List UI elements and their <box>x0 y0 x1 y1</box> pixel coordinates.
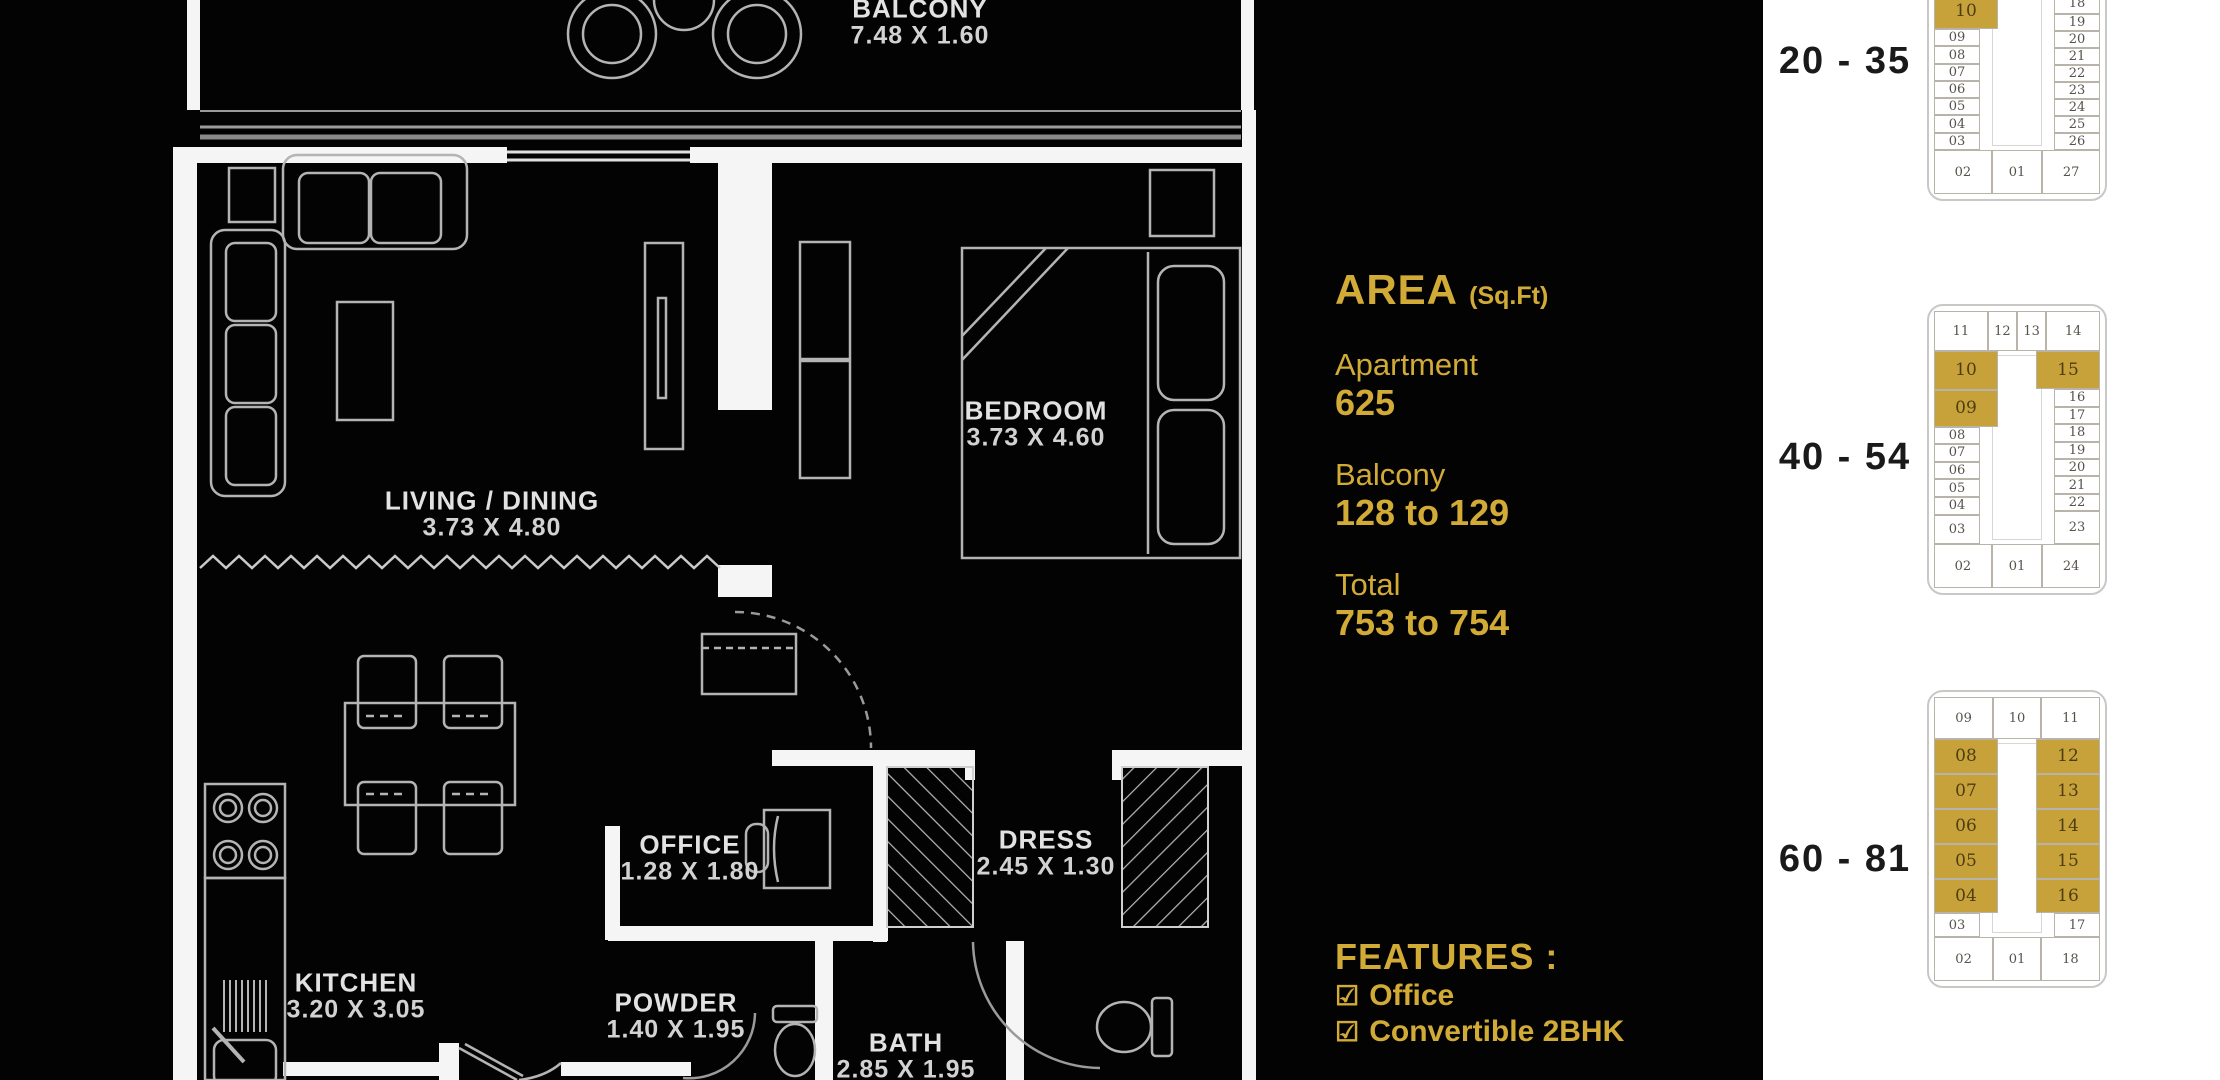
features-panel: FEATURES : ☑Office ☑Convertible 2BHK <box>1335 936 1755 1050</box>
unit-cell: 09 <box>1934 29 1980 46</box>
unit-cell: 03 <box>1934 913 1980 937</box>
unit-cell: 08 <box>1934 427 1980 445</box>
unit-cell: 21 <box>2054 476 2100 493</box>
unit-cell: 26 <box>2054 133 2100 150</box>
unit-cell: 01 <box>1993 937 2041 981</box>
unit-cell: 10 <box>1993 697 2041 739</box>
unit-cell: 02 <box>1934 150 1992 194</box>
unit-cell: 25 <box>2054 116 2100 133</box>
room-label-bedroom: BEDROOM 3.73 X 4.60 <box>965 397 1108 452</box>
key-plan-1: 1009080706050403181920212223242526020127 <box>1927 0 2107 201</box>
key-plan-top-row: 091011 <box>1934 697 2100 739</box>
feature-label: Office <box>1369 979 1454 1012</box>
key-plan-top-row: 11121314 <box>1934 311 2100 351</box>
feature-item-office: ☑Office <box>1335 978 1755 1014</box>
checked-checkbox-icon: ☑ <box>1335 981 1359 1011</box>
room-name: DRESS <box>977 826 1116 854</box>
room-dims: 2.45 X 1.30 <box>977 854 1116 881</box>
unit-cell: 01 <box>1992 544 2042 588</box>
unit-cell: 04 <box>1934 497 1980 515</box>
area-unit: (Sq.Ft) <box>1469 282 1548 310</box>
room-dims: 3.20 X 3.05 <box>287 997 426 1024</box>
features-title: FEATURES : <box>1335 936 1755 978</box>
unit-cell: 01 <box>1992 150 2042 194</box>
floor-plan-page: BALCONY 7.48 X 1.60 LIVING / DINING 3.73… <box>0 0 2220 1080</box>
key-plan-right-column: 181920212223242526 <box>2054 0 2100 150</box>
room-dims: 1.28 X 1.80 <box>621 859 760 886</box>
unit-cell: 27 <box>2042 150 2100 194</box>
unit-cell: 05 <box>1934 479 1980 497</box>
key-plan-middle: 1009080706050403181920212223242526 <box>1934 0 2100 150</box>
room-name: OFFICE <box>621 831 760 859</box>
room-label-kitchen: KITCHEN 3.20 X 3.05 <box>287 969 426 1024</box>
key-plan-bottom-row: 020118 <box>1934 937 2100 981</box>
unit-cell-highlighted: 12 <box>2036 739 2100 774</box>
unit-cell-highlighted: 06 <box>1934 809 1998 844</box>
area-row-label: Apartment <box>1335 348 1735 382</box>
unit-cell: 19 <box>2054 442 2100 459</box>
unit-cell-highlighted: 14 <box>2036 809 2100 844</box>
area-row-value: 753 to 754 <box>1335 602 1735 644</box>
unit-cell-highlighted: 07 <box>1934 774 1998 809</box>
key-plan-right-column: 121314151617 <box>2036 739 2100 937</box>
unit-cell-highlighted: 16 <box>2036 879 2100 914</box>
unit-cell-highlighted: 13 <box>2036 774 2100 809</box>
key-plan-left-column: 080706050403 <box>1934 739 1998 937</box>
area-row-value: 625 <box>1335 382 1735 424</box>
unit-cell: 07 <box>1934 444 1980 462</box>
room-name: BEDROOM <box>965 397 1108 425</box>
unit-cell: 21 <box>2054 48 2100 65</box>
unit-cell: 02 <box>1934 937 1993 981</box>
key-plan-middle: 080706050403121314151617 <box>1934 739 2100 937</box>
unit-cell: 24 <box>2054 99 2100 116</box>
unit-cell: 07 <box>1934 64 1980 81</box>
unit-cell: 23 <box>2054 82 2100 99</box>
unit-cell: 18 <box>2054 424 2100 441</box>
unit-cell-highlighted: 09 <box>1934 390 1998 427</box>
unit-cell-highlighted: 15 <box>2036 351 2100 389</box>
area-row-apartment: Apartment 625 <box>1335 348 1735 424</box>
unit-cell: 14 <box>2046 311 2100 351</box>
room-name: POWDER <box>607 989 746 1017</box>
area-row-value: 128 to 129 <box>1335 492 1735 534</box>
unit-cell: 12 <box>1988 311 2017 351</box>
unit-cell: 09 <box>1934 697 1993 739</box>
unit-cell: 19 <box>2054 14 2100 31</box>
key-plan-core <box>1992 355 2042 540</box>
unit-cell: 24 <box>2042 544 2100 588</box>
room-label-dress: DRESS 2.45 X 1.30 <box>977 826 1116 881</box>
room-dims: 3.73 X 4.60 <box>965 425 1108 452</box>
unit-cell-highlighted: 15 <box>2036 844 2100 879</box>
area-title: AREA (Sq.Ft) <box>1335 266 1735 314</box>
room-label-living-dining: LIVING / DINING 3.73 X 4.80 <box>385 487 599 542</box>
balcony-slider <box>507 152 690 160</box>
room-dims: 2.85 X 1.95 <box>837 1057 976 1080</box>
room-label-office: OFFICE 1.28 X 1.80 <box>621 831 760 886</box>
room-dims: 7.48 X 1.60 <box>851 23 990 50</box>
feature-item-convertible-2bhk: ☑Convertible 2BHK <box>1335 1014 1755 1050</box>
key-plan-core <box>1992 743 2042 933</box>
unit-cell-highlighted: 08 <box>1934 739 1998 774</box>
unit-cell: 17 <box>2054 913 2100 937</box>
walls <box>173 0 1256 1080</box>
room-label-powder: POWDER 1.40 X 1.95 <box>607 989 746 1044</box>
area-title-text: AREA <box>1335 266 1456 313</box>
room-name: BALCONY <box>851 0 990 23</box>
unit-cell: 20 <box>2054 31 2100 48</box>
unit-cell-highlighted: 10 <box>1934 0 1998 29</box>
unit-cell: 05 <box>1934 98 1980 115</box>
area-panel: AREA (Sq.Ft) Apartment 625 Balcony 128 t… <box>1335 266 1735 644</box>
unit-cell: 11 <box>2041 697 2100 739</box>
floor-range-label-1: 20 - 35 <box>1763 40 1927 83</box>
unit-cell: 18 <box>2054 0 2100 14</box>
key-plan-3: 091011080706050403121314151617020118 <box>1927 690 2107 988</box>
room-dims: 3.73 X 4.80 <box>385 515 599 542</box>
room-label-balcony: BALCONY 7.48 X 1.60 <box>851 0 990 50</box>
key-plan-left-column: 1009080706050403 <box>1934 0 1998 150</box>
unit-cell-highlighted: 10 <box>1934 351 1998 390</box>
room-name: KITCHEN <box>287 969 426 997</box>
checked-checkbox-icon: ☑ <box>1335 1017 1359 1047</box>
unit-cell: 16 <box>2054 389 2100 406</box>
key-plan-bottom-row: 020124 <box>1934 544 2100 588</box>
key-plan-panel: 20 - 35 40 - 54 60 - 81 1009080706050403… <box>1763 0 2220 1080</box>
unit-cell-highlighted: 04 <box>1934 879 1998 914</box>
unit-cell: 18 <box>2041 937 2100 981</box>
key-plan-core <box>1992 0 2042 146</box>
floor-range-label-2: 40 - 54 <box>1763 436 1927 479</box>
unit-cell: 03 <box>1934 133 1980 150</box>
unit-cell: 08 <box>1934 46 1980 63</box>
unit-cell: 13 <box>2017 311 2046 351</box>
unit-cell: 22 <box>2054 494 2100 511</box>
unit-cell: 06 <box>1934 81 1980 98</box>
balcony-railing <box>200 111 1241 137</box>
key-plan-left-column: 1009080706050403 <box>1934 351 1998 544</box>
key-plan-middle: 1009080706050403151617181920212223 <box>1934 351 2100 544</box>
room-name: LIVING / DINING <box>385 487 599 515</box>
unit-cell: 02 <box>1934 544 1992 588</box>
feature-label: Convertible 2BHK <box>1369 1015 1624 1048</box>
key-plan-right-column: 151617181920212223 <box>2036 351 2100 544</box>
unit-cell: 11 <box>1934 311 1988 351</box>
room-name: BATH <box>837 1029 976 1057</box>
area-row-balcony: Balcony 128 to 129 <box>1335 458 1735 534</box>
key-plan-2: 1112131410090807060504031516171819202122… <box>1927 304 2107 595</box>
unit-cell: 23 <box>2054 511 2100 544</box>
unit-cell: 04 <box>1934 115 1980 132</box>
floor-range-label-3: 60 - 81 <box>1763 838 1927 881</box>
unit-cell-highlighted: 05 <box>1934 844 1998 879</box>
key-plan-bottom-row: 020127 <box>1934 150 2100 194</box>
unit-cell: 06 <box>1934 462 1980 480</box>
area-row-label: Balcony <box>1335 458 1735 492</box>
room-label-bath: BATH 2.85 X 1.95 <box>837 1029 976 1080</box>
unit-cell: 17 <box>2054 407 2100 424</box>
room-dims: 1.40 X 1.95 <box>607 1017 746 1044</box>
unit-cell: 22 <box>2054 65 2100 82</box>
area-row-label: Total <box>1335 568 1735 602</box>
break-line <box>200 556 720 568</box>
unit-cell: 20 <box>2054 459 2100 476</box>
unit-cell: 03 <box>1934 515 1980 545</box>
area-row-total: Total 753 to 754 <box>1335 568 1735 644</box>
